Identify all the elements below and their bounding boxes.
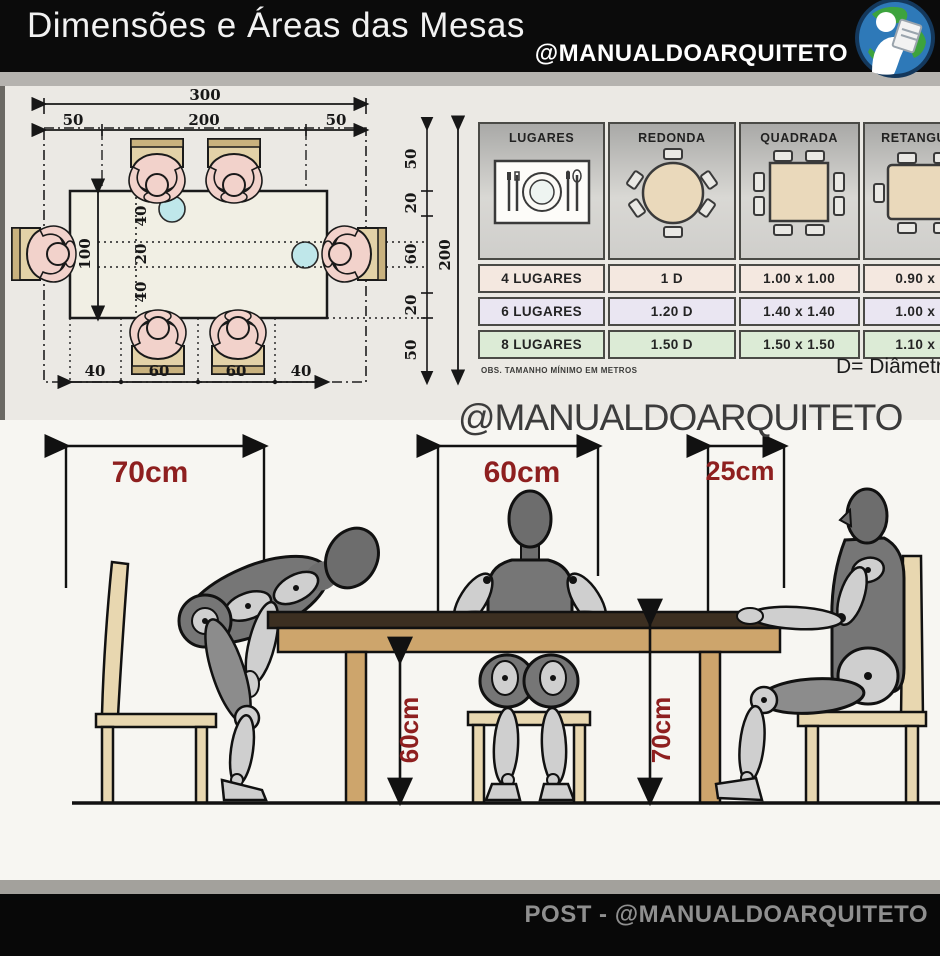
dim-overall-width: 300 <box>189 88 220 104</box>
dim-edge-distance: 25cm <box>705 456 774 486</box>
page-title: Dimensões e Áreas das Mesas <box>27 6 525 46</box>
footer-divider <box>0 880 940 894</box>
col-retangular-label: RETANGULAR <box>881 124 940 145</box>
footer-credit: POST - @MANUALDOARQUITETO <box>525 901 928 929</box>
col-lugares-label: LUGARES <box>509 124 574 145</box>
place-setting-icon <box>487 145 597 239</box>
table-row: 4 LUGARES 1 D 1.00 x 1.00 0.90 x 1.4 <box>478 264 940 293</box>
dim-left-margin: 50 <box>63 111 84 129</box>
photo-edge <box>0 86 5 420</box>
header-handle: @MANUALDOARQUITETO <box>535 40 848 68</box>
floor-plan-diagram: 300 50 200 50 50 20 60 20 50 200 100 40 … <box>6 88 470 404</box>
round-table-icon <box>617 145 727 241</box>
dim-right-margin: 50 <box>326 111 347 129</box>
col-lugares: LUGARES <box>478 122 605 260</box>
dim-right-seg-3: 20 <box>402 295 420 316</box>
dim-right-seg-2: 60 <box>402 244 420 265</box>
cell-round: 1.20 D <box>608 297 735 326</box>
cell-round: 1.50 D <box>608 330 735 359</box>
col-quadrada-label: QUADRADA <box>760 124 838 145</box>
diameter-legend: D= Diâmetro <box>836 355 940 379</box>
dining-table <box>268 612 792 803</box>
plate-circle <box>292 242 318 268</box>
table-note: OBS. TAMANHO MÍNIMO EM METROS <box>481 366 637 375</box>
cell-places: 4 LUGARES <box>478 264 605 293</box>
cell-places: 8 LUGARES <box>478 330 605 359</box>
cell-rect: 1.00 x 1.8 <box>863 297 940 326</box>
footer-bar: POST - @MANUALDOARQUITETO <box>0 894 940 956</box>
elevation-diagram: 70cm 60cm 25cm <box>0 420 940 880</box>
post-image: Dimensões e Áreas das Mesas @MANUALDOARQ… <box>0 0 940 956</box>
cell-square: 1.40 x 1.40 <box>739 297 860 326</box>
cell-square: 1.00 x 1.00 <box>739 264 860 293</box>
rect-table-icon <box>868 145 940 241</box>
dim-table-depth: 100 <box>76 238 94 269</box>
dim-right-seg-0: 50 <box>402 149 420 170</box>
dim-table-height: 70cm <box>646 697 676 764</box>
dim-bottom-seg-1: 60 <box>149 362 170 380</box>
square-table-icon <box>746 145 852 241</box>
dim-depth-seg-1: 20 <box>132 244 150 265</box>
dim-depth-seg-0: 40 <box>132 206 150 227</box>
dim-place-width: 60cm <box>484 456 561 489</box>
cell-places: 6 LUGARES <box>478 297 605 326</box>
header-bar: Dimensões e Áreas das Mesas @MANUALDOARQ… <box>0 0 940 72</box>
col-redonda: REDONDA <box>608 122 735 260</box>
dim-bottom-seg-3: 40 <box>291 362 312 380</box>
cell-round: 1 D <box>608 264 735 293</box>
dim-table-length: 200 <box>188 111 219 129</box>
col-retangular: RETANGULAR <box>863 122 940 260</box>
col-redonda-label: REDONDA <box>638 124 705 145</box>
table-row: 6 LUGARES 1.20 D 1.40 x 1.40 1.00 x 1.8 <box>478 297 940 326</box>
architect-globe-logo-icon <box>850 0 940 86</box>
figure-seated-front-legs <box>468 655 590 803</box>
table-sizes-chart: LUGARES <box>478 122 940 362</box>
dim-right-seg-1: 20 <box>402 193 420 214</box>
table-header-row: LUGARES <box>478 122 940 260</box>
dim-bottom-seg-0: 40 <box>85 362 106 380</box>
cell-rect: 0.90 x 1.4 <box>863 264 940 293</box>
dim-bottom-seg-2: 60 <box>226 362 247 380</box>
dim-knee-clearance: 60cm <box>394 697 424 764</box>
dim-depth-seg-2: 40 <box>132 282 150 303</box>
col-quadrada: QUADRADA <box>739 122 860 260</box>
header-divider <box>0 72 940 86</box>
dim-chair-pullback: 70cm <box>112 456 189 489</box>
dim-right-seg-4: 50 <box>402 340 420 361</box>
watermark-handle: @MANUALDOARQUITETO <box>458 397 902 439</box>
dim-overall-depth: 200 <box>436 239 454 270</box>
